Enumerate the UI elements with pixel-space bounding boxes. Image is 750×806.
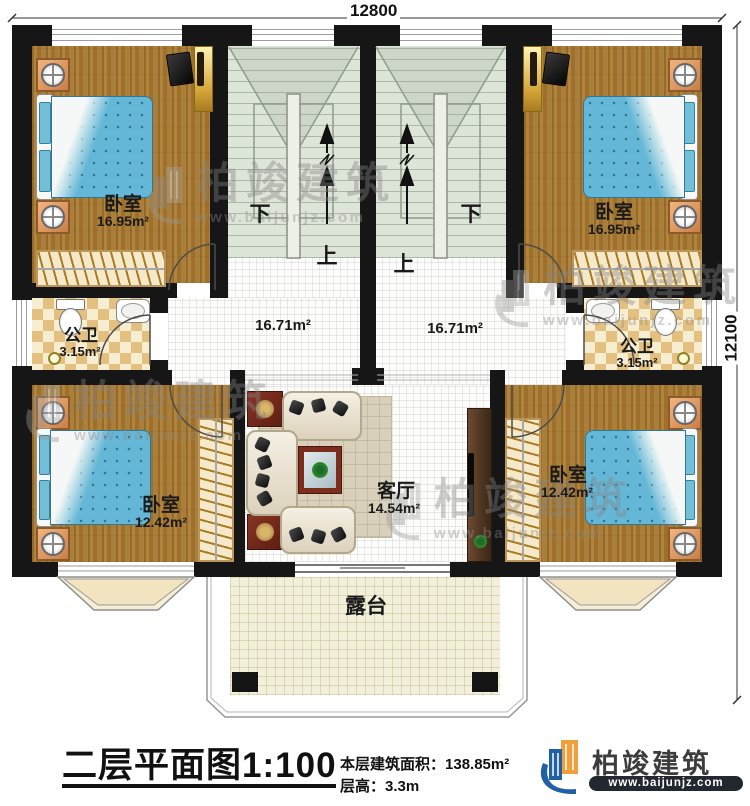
floor-area-value: 138.85m² bbox=[445, 756, 509, 773]
brand-url: www.baijunjz.com bbox=[589, 776, 743, 791]
stair-left-up-label: 上 bbox=[317, 246, 338, 267]
plan-title: 二层平面图1:100 bbox=[62, 737, 337, 788]
floor-plan-canvas: 柏竣建筑 www.baijunjz.com 柏竣建筑 www.baijunjz.… bbox=[0, 0, 750, 806]
dimension-height: 12100 bbox=[722, 311, 742, 364]
bay-window-right bbox=[540, 566, 676, 610]
stair-left-arrows bbox=[320, 126, 334, 224]
door-arcs bbox=[100, 244, 634, 437]
floor-height-label: 层高： bbox=[340, 778, 385, 795]
floor-height-value: 3.3m bbox=[385, 778, 419, 795]
stair-left-down-label: 下 bbox=[250, 204, 271, 225]
room-label-bedroom-br: 卧室 bbox=[549, 466, 587, 485]
room-area-hall-l: 16.71m² bbox=[255, 318, 311, 333]
plan-title-text: 二层平面图 bbox=[62, 746, 242, 785]
stair-right-arrows bbox=[400, 126, 414, 224]
room-area-bedroom-bl: 12.42m² bbox=[135, 515, 187, 529]
room-area-bedroom-tl: 16.95m² bbox=[97, 214, 149, 228]
floor-height-stat: 层高：3.3m bbox=[340, 775, 419, 796]
room-label-terrace: 露台 bbox=[345, 596, 387, 617]
linework-overlay bbox=[0, 0, 750, 806]
plan-scale: 1:100 bbox=[242, 746, 337, 785]
bay-window-left bbox=[58, 566, 194, 610]
room-area-hall-r: 16.71m² bbox=[427, 321, 483, 336]
room-area-bedroom-br: 12.42m² bbox=[541, 485, 593, 499]
room-label-bedroom-tr: 卧室 bbox=[595, 203, 633, 222]
room-area-bath-r: 3.15m² bbox=[616, 356, 657, 369]
stair-right-up-label: 上 bbox=[394, 254, 415, 275]
brand-logo-icon bbox=[540, 738, 586, 794]
room-area-bath-l: 3.15m² bbox=[59, 345, 100, 358]
terrace-sliding-door bbox=[295, 565, 450, 572]
floor-area-label: 本层建筑面积： bbox=[340, 756, 445, 773]
room-label-bath-l: 公卫 bbox=[64, 327, 98, 344]
threshold-lines bbox=[245, 375, 490, 380]
room-label-bath-r: 公卫 bbox=[620, 338, 654, 355]
room-area-living: 14.54m² bbox=[368, 501, 420, 515]
room-area-bedroom-tr: 16.95m² bbox=[588, 222, 640, 236]
stair-left-funnel bbox=[229, 47, 358, 258]
title-underline bbox=[62, 784, 336, 788]
room-label-bedroom-tl: 卧室 bbox=[104, 195, 142, 214]
floor-area-stat: 本层建筑面积：138.85m² bbox=[340, 753, 509, 774]
stair-right-down-label: 下 bbox=[461, 204, 482, 225]
stair-right-funnel bbox=[376, 47, 505, 258]
dimension-width: 12800 bbox=[347, 1, 400, 21]
room-label-living: 客厅 bbox=[377, 482, 415, 501]
room-label-bedroom-bl: 卧室 bbox=[142, 496, 180, 515]
